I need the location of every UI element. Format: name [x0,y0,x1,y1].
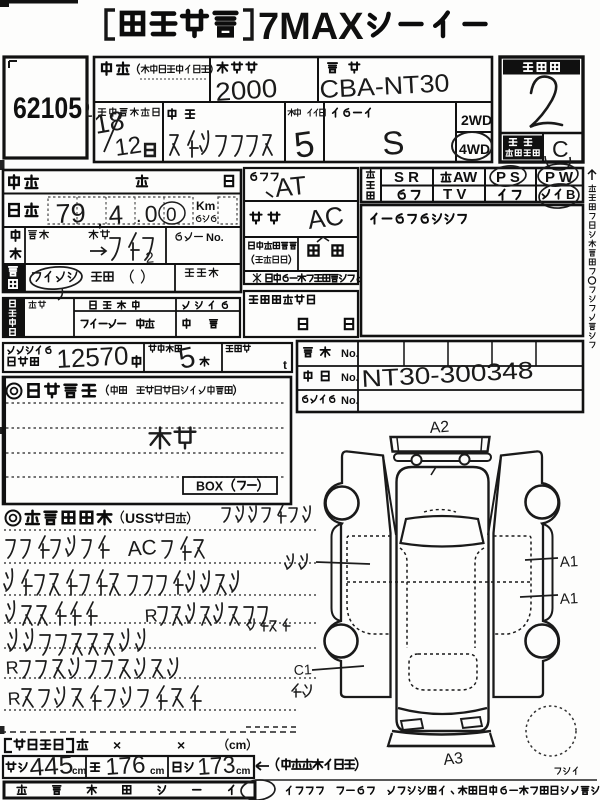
svg-text:A1: A1 [559,590,578,608]
svg-text:t: t [283,358,287,372]
svg-text:S: S [381,124,406,162]
svg-text:12570: 12570 [56,340,129,374]
svg-text:×: × [177,737,185,753]
svg-text:176: 176 [105,751,147,781]
svg-text:2WD: 2WD [461,112,492,128]
svg-text:12: 12 [113,131,143,161]
svg-text:C: C [552,136,569,162]
svg-text:445: 445 [28,751,74,782]
svg-text:B: B [566,187,575,202]
svg-text:79: 79 [55,198,86,229]
svg-text:173: 173 [197,751,237,781]
svg-text:USS: USS [125,510,154,526]
svg-text:AC: AC [127,536,158,561]
svg-text:AC: AC [306,200,346,235]
svg-text:R: R [7,688,21,709]
svg-text:cm: cm [72,766,87,777]
svg-text:,: , [97,206,103,231]
svg-text:2000: 2000 [214,73,278,107]
svg-text:A3: A3 [443,750,464,769]
svg-text:cm: cm [236,766,251,777]
svg-text:cm: cm [229,738,246,752]
svg-text:cm: cm [150,766,165,777]
svg-text:No.: No. [341,395,359,407]
svg-text:A2: A2 [429,419,450,437]
svg-text:7MAX: 7MAX [258,6,364,48]
svg-text:4: 4 [108,199,124,230]
svg-text:AT: AT [273,170,307,203]
svg-text:R: R [5,657,19,678]
svg-text:No.: No. [206,232,224,244]
svg-text:Km: Km [196,199,215,213]
svg-text:.: . [136,205,142,227]
svg-text:No.: No. [341,372,359,384]
svg-text:S R: S R [394,169,419,186]
svg-text:R: R [144,605,158,626]
svg-text:A1: A1 [559,553,578,571]
svg-text:×: × [113,737,121,753]
svg-text:No.: No. [341,348,359,360]
svg-text:0: 0 [144,201,158,227]
svg-text:4WD: 4WD [459,141,490,157]
svg-text:62105: 62105 [13,92,82,125]
svg-text:2: 2 [145,249,155,267]
svg-text:C1: C1 [293,661,312,678]
svg-text:BOX: BOX [196,480,224,494]
svg-text:AW: AW [453,169,478,186]
svg-text:T V: T V [443,186,466,203]
